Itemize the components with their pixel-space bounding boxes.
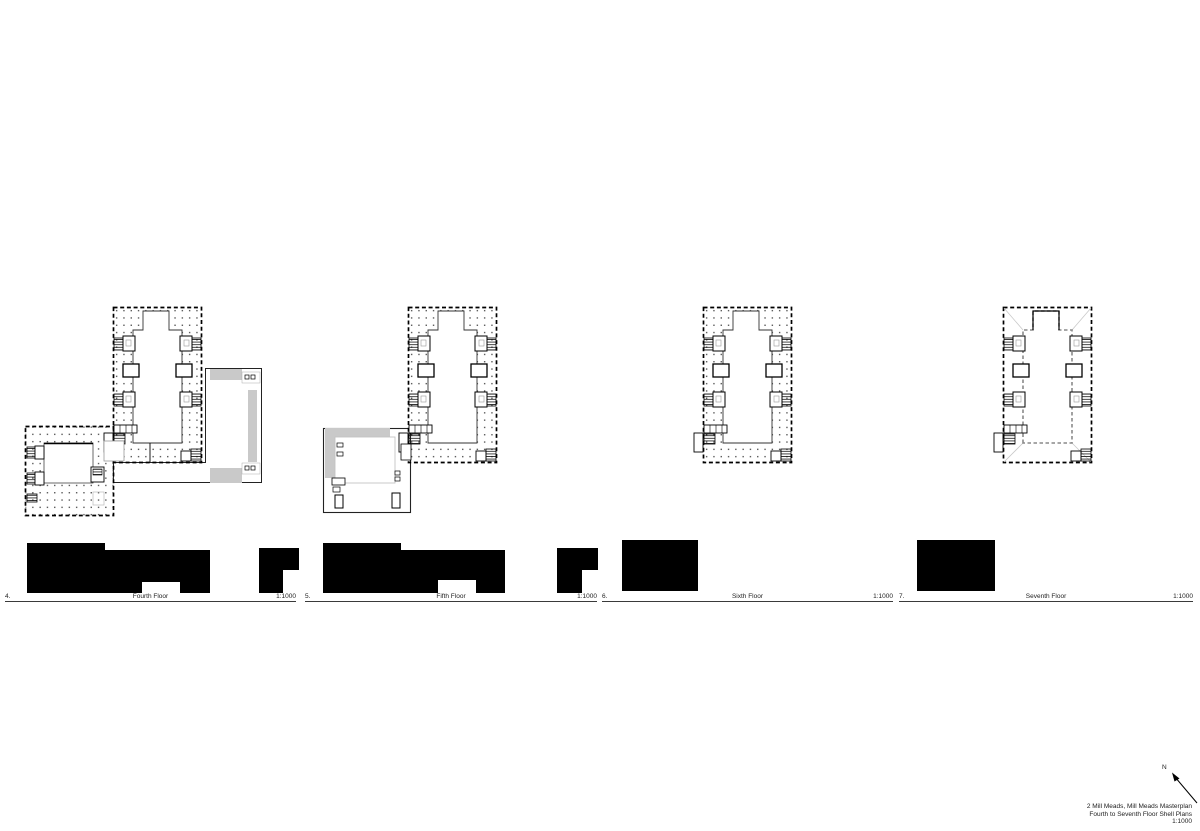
plan-scale: 1:1000 (577, 592, 597, 601)
north-label: N (1162, 764, 1167, 771)
plan-scale: 1:1000 (276, 592, 296, 601)
key-plan-silhouettes (27, 540, 995, 593)
fifth-floor-tower (399, 308, 497, 463)
plan-title: Fifth Floor (305, 592, 597, 601)
drawing-sheet: N 4. Fourth Floor 1:1000 5. Fifth Floor … (0, 0, 1200, 831)
sixth-floor-plan (694, 308, 792, 463)
title-block: 2 Mill Meads, Mill Meads Masterplan Four… (972, 803, 1192, 826)
fourth-floor-key-silhouette-2 (259, 548, 299, 593)
caption-fifth-floor: 5. Fifth Floor 1:1000 (305, 592, 597, 602)
fourth-floor-key-silhouette (27, 543, 210, 593)
caption-sixth-floor: 6. Sixth Floor 1:1000 (602, 592, 893, 602)
seventh-floor-plan (994, 308, 1092, 463)
caption-seventh-floor: 7. Seventh Floor 1:1000 (899, 592, 1193, 602)
sheet-scale: 1:1000 (972, 818, 1192, 826)
seventh-floor-tower (994, 308, 1092, 463)
caption-fourth-floor: 4. Fourth Floor 1:1000 (5, 592, 296, 602)
project-name: 2 Mill Meads, Mill Meads Masterplan (972, 803, 1192, 811)
sixth-floor-tower (694, 308, 792, 463)
north-arrow: N (1162, 764, 1197, 803)
plan-title: Fourth Floor (5, 592, 296, 601)
fifth-floor-key-silhouette-2 (557, 548, 598, 593)
plan-scale: 1:1000 (1173, 592, 1193, 601)
plans-drawing: N (0, 0, 1200, 831)
plan-scale: 1:1000 (873, 592, 893, 601)
sheet-title: Fourth to Seventh Floor Shell Plans (972, 811, 1192, 819)
fifth-floor-key-silhouette (323, 543, 505, 593)
plan-title: Sixth Floor (602, 592, 893, 601)
plan-title: Seventh Floor (899, 592, 1193, 601)
fourth-floor-tower (104, 308, 202, 463)
fifth-floor-plan (324, 308, 497, 513)
seventh-floor-key-silhouette (917, 540, 995, 591)
fourth-floor-plan (26, 308, 262, 516)
sixth-floor-key-silhouette (622, 540, 698, 591)
